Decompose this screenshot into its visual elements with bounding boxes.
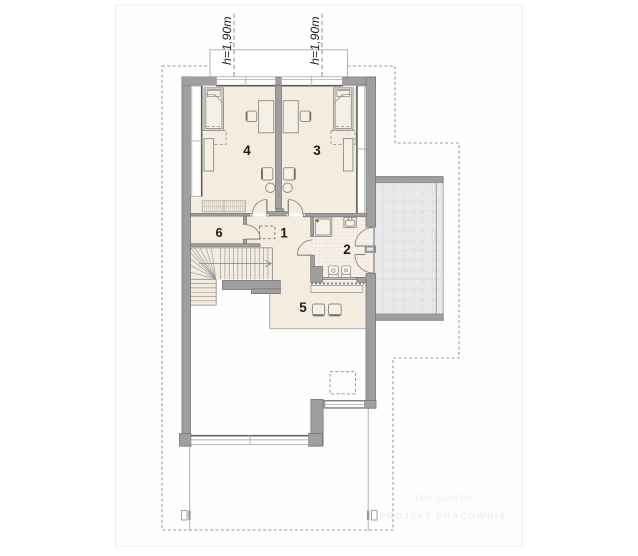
svg-text:5: 5 — [299, 300, 307, 315]
svg-text:6: 6 — [215, 225, 222, 240]
svg-text:h=1,90m: h=1,90m — [308, 16, 322, 65]
svg-text:PROJEKT PRACOWNIA: PROJEKT PRACOWNIA — [379, 511, 507, 522]
svg-text:h=1,90m: h=1,90m — [220, 16, 234, 65]
svg-text:2: 2 — [343, 242, 351, 257]
svg-text:Designed by: Designed by — [413, 493, 472, 505]
svg-text:1: 1 — [280, 226, 288, 241]
svg-text:4: 4 — [243, 143, 251, 158]
svg-text:3: 3 — [313, 143, 321, 158]
